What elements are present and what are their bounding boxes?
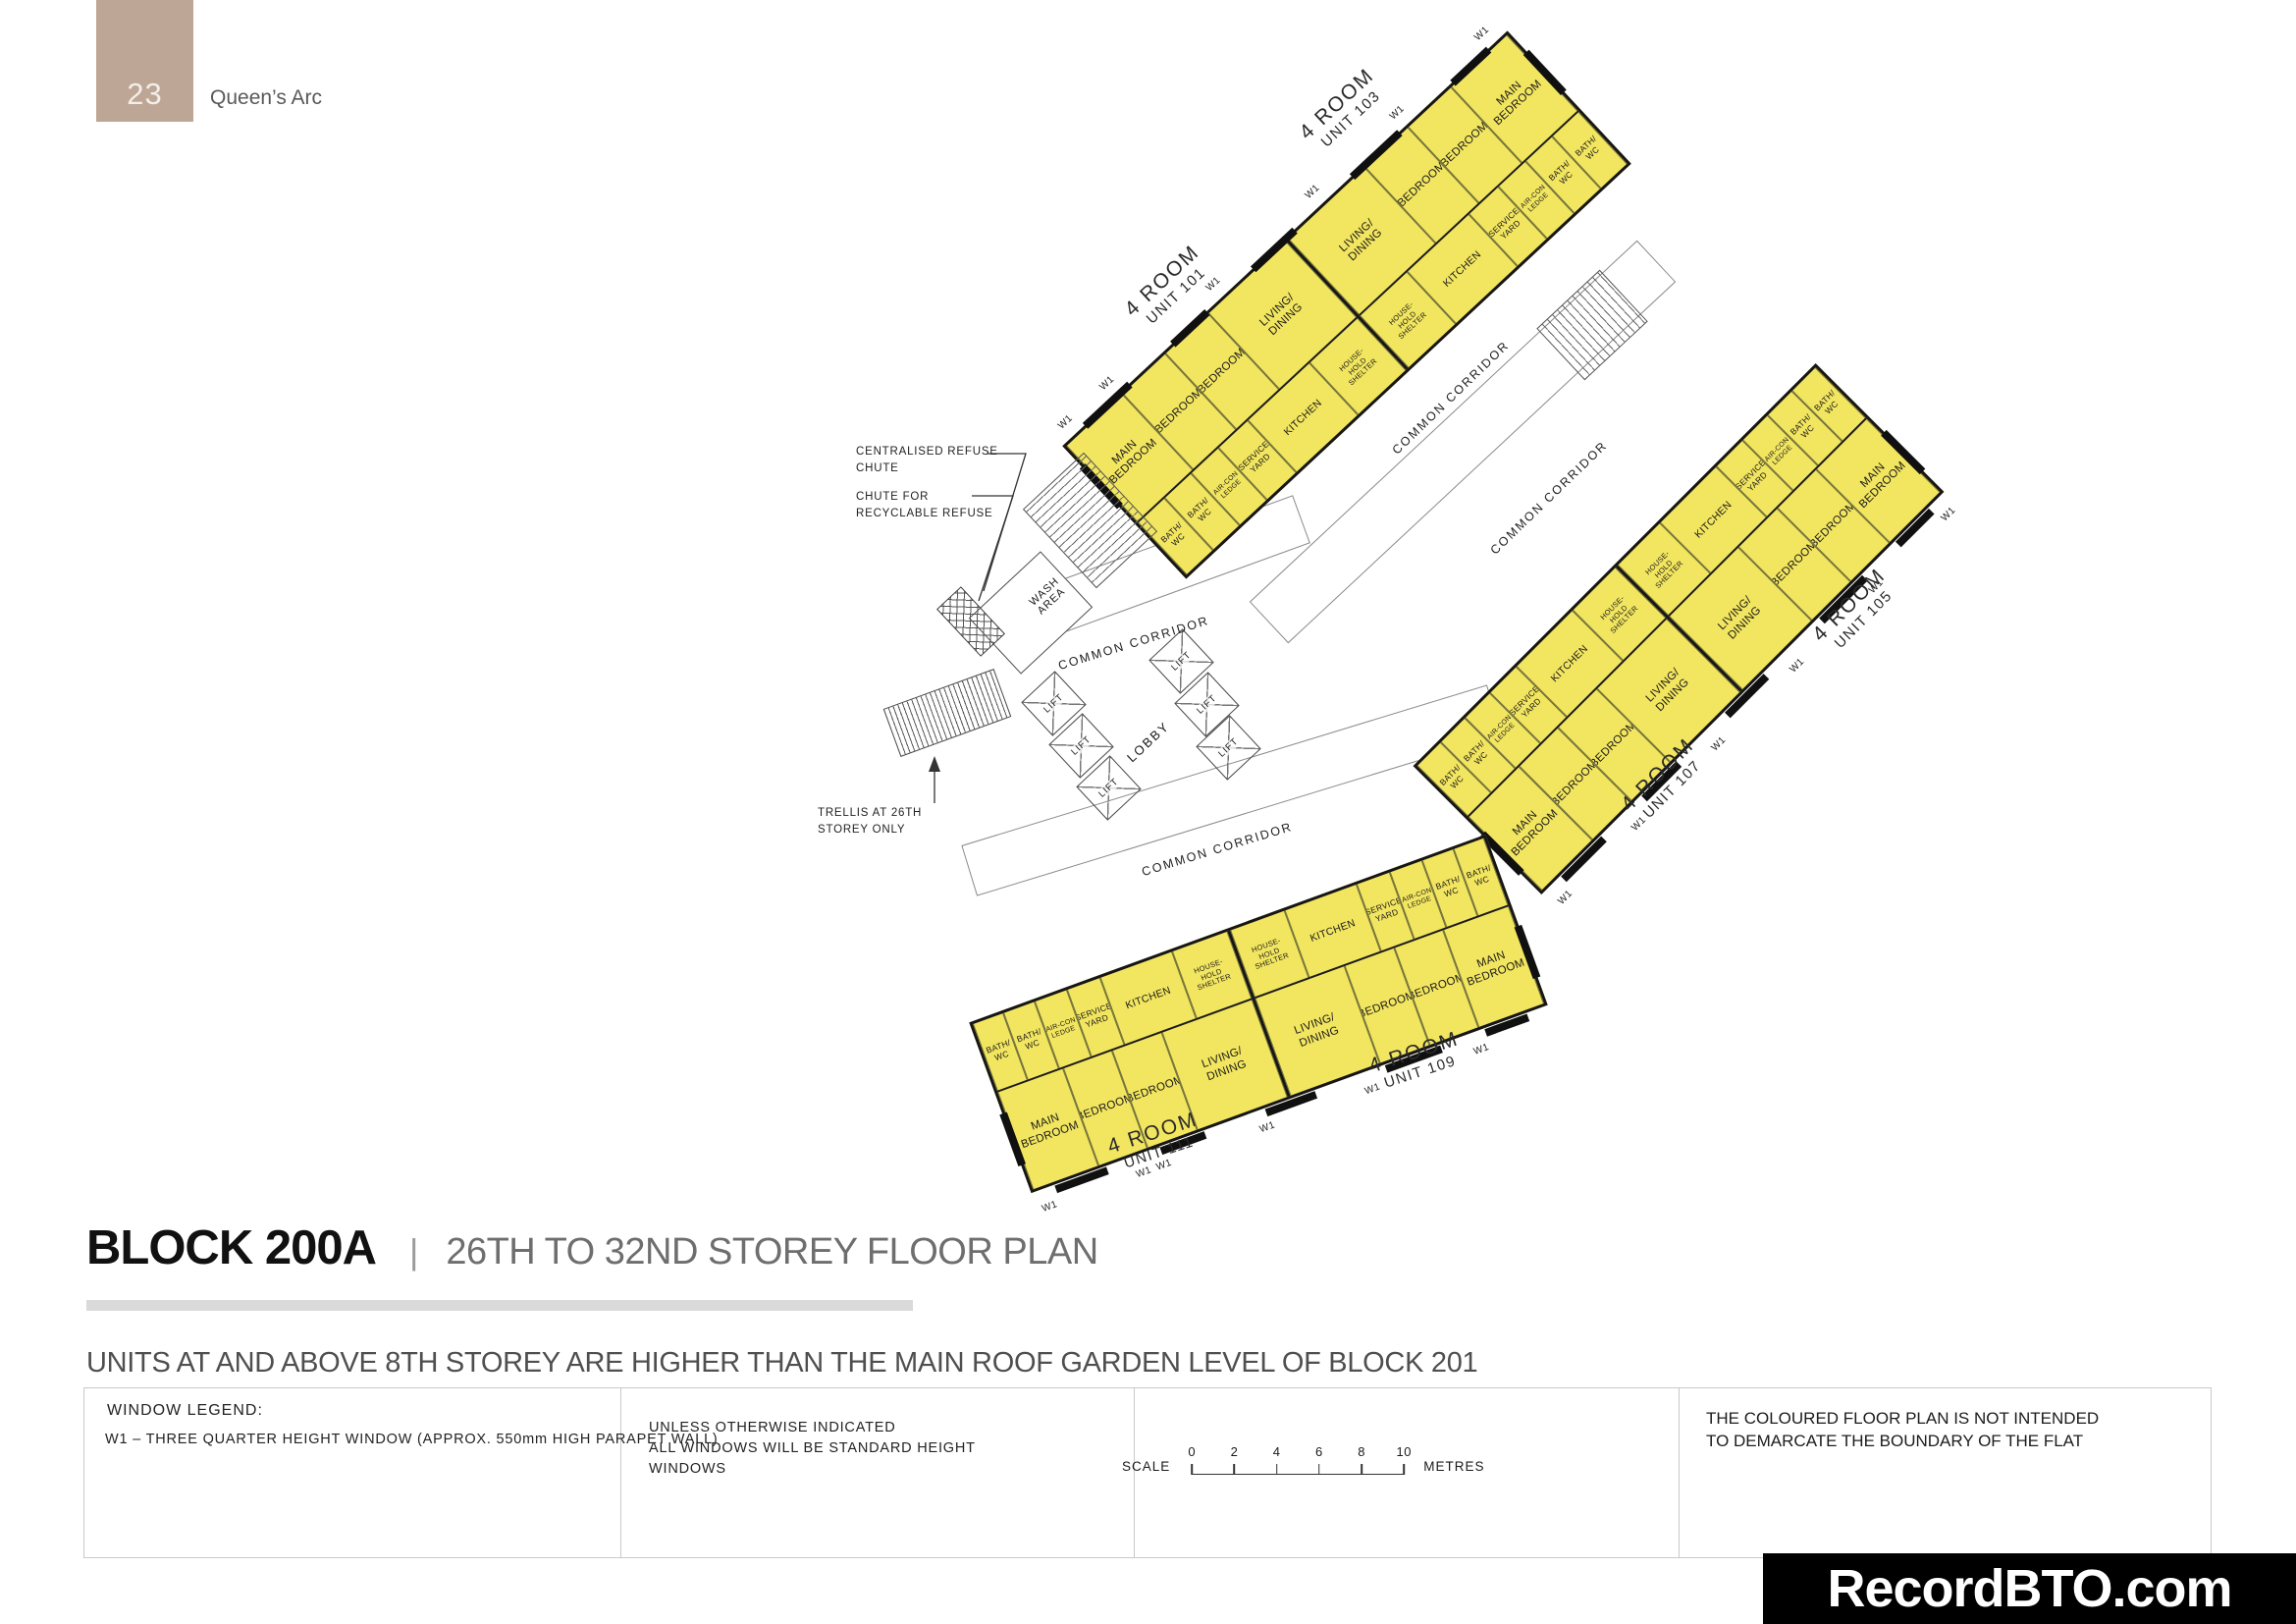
window-marker: W1: [1258, 1119, 1277, 1135]
window-marker: W1: [1472, 25, 1491, 43]
room-label: AIR-CON LEDGE: [1486, 714, 1520, 747]
room-label: BEDROOM: [1549, 758, 1601, 810]
recyclable-refuse-label: CHUTE FOR RECYCLABLE REFUSE: [856, 489, 993, 523]
room-label: HOUSE- HOLD SHELTER: [1336, 345, 1379, 388]
window-marker: W1: [1097, 374, 1116, 393]
room-label: KITCHEN: [1308, 917, 1357, 945]
wing-bottom: MAIN BEDROOM BEDROOM BEDROOM LIVING/ DIN…: [969, 835, 1548, 1193]
window-marker: W1: [1388, 103, 1407, 122]
lift-label: LIFT: [1095, 775, 1123, 801]
room-label: MAIN BEDROOM: [1461, 945, 1526, 990]
scale-tick-label: 4: [1273, 1444, 1281, 1459]
title-row: BLOCK 200A | 26TH TO 32ND STOREY FLOOR P…: [86, 1220, 1098, 1275]
room-label: HOUSE- HOLD SHELTER: [1249, 936, 1291, 972]
scale-label: SCALE: [1122, 1459, 1170, 1475]
trellis-walkway: [883, 669, 1012, 757]
room-label: HOUSE- HOLD SHELTER: [1597, 593, 1640, 636]
scale-tick-label: 0: [1188, 1444, 1196, 1459]
watermark-text: RecordBTO.com: [1827, 1558, 2231, 1619]
room-label: KITCHEN: [1692, 499, 1735, 541]
room-label: KITCHEN: [1549, 643, 1591, 685]
lift-label: LIFT: [1041, 690, 1068, 717]
room-label: LIVING/ DINING: [1338, 217, 1386, 265]
block-title: BLOCK 200A: [86, 1220, 376, 1275]
scale-tick-label: 6: [1315, 1444, 1323, 1459]
lobby-label: LOBBY: [1124, 719, 1172, 765]
room-label: BATH/ WC: [1016, 1027, 1046, 1054]
room-label: BATH/ WC: [986, 1039, 1016, 1065]
room-label: KITCHEN: [1282, 397, 1324, 438]
legend-divider: [1679, 1388, 1680, 1557]
room-label: BATH/ WC: [1789, 412, 1821, 444]
room-label: HOUSE- HOLD SHELTER: [1386, 298, 1429, 342]
scale-unit: METRES: [1423, 1459, 1484, 1475]
lift-label: LIFT: [1068, 732, 1095, 759]
scale-tick: [1234, 1464, 1236, 1475]
room-label: BATH/ WC: [1574, 135, 1605, 166]
lift-label: LIFT: [1194, 691, 1221, 718]
scale-line: [1192, 1474, 1404, 1475]
page-number-box: 23: [96, 0, 193, 122]
scale-group: SCALE 0 2 4 6 8 10 METRES: [1122, 1441, 1485, 1475]
trellis-label: TRELLIS AT 26TH STOREY ONLY: [818, 805, 922, 839]
project-name: Queen’s Arc: [210, 86, 322, 110]
scale-tick-label: 10: [1397, 1444, 1412, 1459]
window-marker: W1: [1304, 183, 1322, 201]
room-label: LIVING/ DINING: [1201, 1046, 1249, 1085]
lift-label: LIFT: [1168, 648, 1196, 675]
storey-note: UNITS AT AND ABOVE 8TH STOREY ARE HIGHER…: [86, 1347, 1477, 1380]
room-label: BEDROOM: [1152, 386, 1205, 437]
window-legend-title: WINDOW LEGEND:: [107, 1402, 263, 1420]
boundary-note: THE COLOURED FLOOR PLAN IS NOT INTENDED …: [1706, 1408, 2099, 1453]
windows-note: UNLESS OTHERWISE INDICATED ALL WINDOWS W…: [649, 1418, 976, 1480]
wash-area-label: WASH AREA: [1028, 575, 1070, 618]
title-separator: |: [409, 1231, 418, 1272]
room-label: BEDROOM: [1124, 1074, 1185, 1107]
room-label: MAIN BEDROOM: [1015, 1107, 1081, 1152]
room-label: MAIN BEDROOM: [1483, 69, 1545, 129]
page-number: 23: [127, 77, 162, 112]
scale-bar: 0 2 4 6 8 10: [1192, 1441, 1404, 1475]
scale-tick: [1361, 1464, 1362, 1475]
watermark-banner: RecordBTO.com: [1763, 1553, 2296, 1624]
room-label: AIR-CON LEDGE: [1764, 436, 1797, 469]
room-label: BEDROOM: [1075, 1092, 1136, 1124]
window-legend-item: W1 – THREE QUARTER HEIGHT WINDOW (APPROX…: [105, 1432, 719, 1447]
room-label: AIR-CON LEDGE: [1045, 1016, 1080, 1042]
window-marker: W1: [1788, 656, 1806, 675]
room-label: BEDROOM: [1357, 990, 1417, 1022]
scale-tick: [1318, 1464, 1320, 1475]
scale-tick-label: 8: [1358, 1444, 1365, 1459]
room-label: LIVING/ DINING: [1257, 292, 1306, 340]
room-label: KITCHEN: [1124, 985, 1172, 1012]
window-marker: W1: [1556, 889, 1575, 907]
brochure-page: 23 Queen’s Arc MAIN BEDROOM BEDROOM BEDR…: [0, 0, 2296, 1624]
common-corridor-label: COMMON CORRIDOR: [1488, 438, 1611, 557]
centralised-refuse-label: CENTRALISED REFUSE CHUTE: [856, 444, 998, 478]
room-label: BATH/ WC: [1813, 389, 1844, 420]
legend-divider: [620, 1388, 621, 1557]
room-label: LIVING/ DINING: [1644, 667, 1692, 715]
room-label: BATH/ WC: [1186, 496, 1217, 527]
room-label: AIR-CON LEDGE: [1520, 184, 1553, 216]
room-label: MAIN BEDROOM: [1847, 451, 1908, 512]
room-label: LIVING/ DINING: [1293, 1011, 1341, 1051]
room-label: LIVING/ DINING: [1716, 594, 1764, 642]
window-marker: W1: [1056, 412, 1075, 431]
room-label: AIR-CON LEDGE: [1212, 470, 1246, 503]
scale-tick: [1403, 1464, 1405, 1475]
room-label: BATH/ WC: [1438, 763, 1469, 794]
storey-title: 26TH TO 32ND STOREY FLOOR PLAN: [446, 1231, 1097, 1273]
title-underline: [86, 1300, 913, 1311]
room-label: BEDROOM: [1769, 538, 1821, 590]
scale-tick: [1191, 1464, 1193, 1475]
room-label: BATH/ WC: [1463, 739, 1494, 771]
room-label: BEDROOM: [1807, 500, 1859, 552]
room-label: BATH/ WC: [1435, 875, 1466, 901]
room-label: BEDROOM: [1396, 160, 1449, 211]
room-label: BATH/ WC: [1466, 864, 1496, 891]
window-marker: W1: [1940, 505, 1958, 523]
room-label: BEDROOM: [1406, 971, 1467, 1003]
scale-tick: [1276, 1464, 1278, 1475]
room-label: MAIN BEDROOM: [1500, 798, 1561, 859]
window-marker: W1: [1041, 1199, 1059, 1215]
room-label: BATH/ WC: [1547, 159, 1578, 190]
room-label: BATH/ WC: [1159, 520, 1191, 552]
room-label: AIR-CON LEDGE: [1401, 887, 1435, 912]
room-label: BEDROOM: [1588, 719, 1640, 771]
scale-tick-label: 2: [1231, 1444, 1239, 1459]
room-label: KITCHEN: [1441, 248, 1483, 290]
room-label: HOUSE- HOLD SHELTER: [1191, 957, 1233, 994]
room-label: HOUSE- HOLD SHELTER: [1642, 548, 1685, 591]
room-label: BEDROOM: [1196, 347, 1249, 398]
room-label: BEDROOM: [1438, 120, 1491, 171]
lift-label: LIFT: [1215, 734, 1243, 761]
